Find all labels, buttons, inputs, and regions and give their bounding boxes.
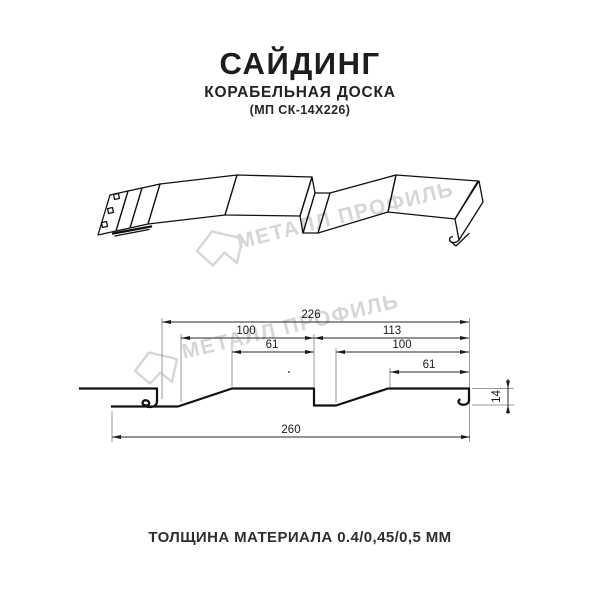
dimension-label-113: 113 (383, 325, 401, 337)
dimension-label-260: 260 (281, 424, 300, 436)
dimension-label-100-left: 100 (236, 325, 255, 337)
dimension-label-226: 226 (301, 309, 320, 321)
metal-profil-logo-icon (135, 353, 177, 384)
end-hook-face (455, 181, 483, 240)
dimension-label-61-left: 61 (266, 339, 279, 351)
profile-outline (112, 389, 469, 407)
lock-hem (116, 188, 142, 231)
watermark-3d: МЕТАЛЛ ПРОФИЛЬ (197, 178, 456, 266)
lock-hem (130, 184, 160, 228)
end-hook-curl (458, 400, 469, 405)
drawing-canvas: МЕТАЛЛ ПРОФИЛЬ МЕТАЛЛ ПРОФИЛЬ (0, 0, 600, 600)
dimension-label-61-right: 61 (423, 359, 436, 371)
dimension-label-100-right: 100 (392, 339, 411, 351)
watermark-section: МЕТАЛЛ ПРОФИЛЬ (135, 289, 401, 383)
slope-face-1 (148, 175, 237, 224)
flat-face-1 (225, 175, 312, 216)
watermark-text: МЕТАЛЛ ПРОФИЛЬ (180, 289, 402, 363)
adjacent-panel-edge (80, 389, 157, 402)
nail-strip-holes (102, 194, 120, 228)
spec-sheet-page: САЙДИНГ КОРАБЕЛЬНАЯ ДОСКА (МП СК-14Х226)… (0, 0, 600, 600)
thickness-note: ТОЛЩИНА МАТЕРИАЛА 0.4/0,45/0,5 ММ (0, 529, 600, 546)
cross-section-drawing (80, 389, 469, 408)
dimension-label-14: 14 (491, 390, 503, 403)
